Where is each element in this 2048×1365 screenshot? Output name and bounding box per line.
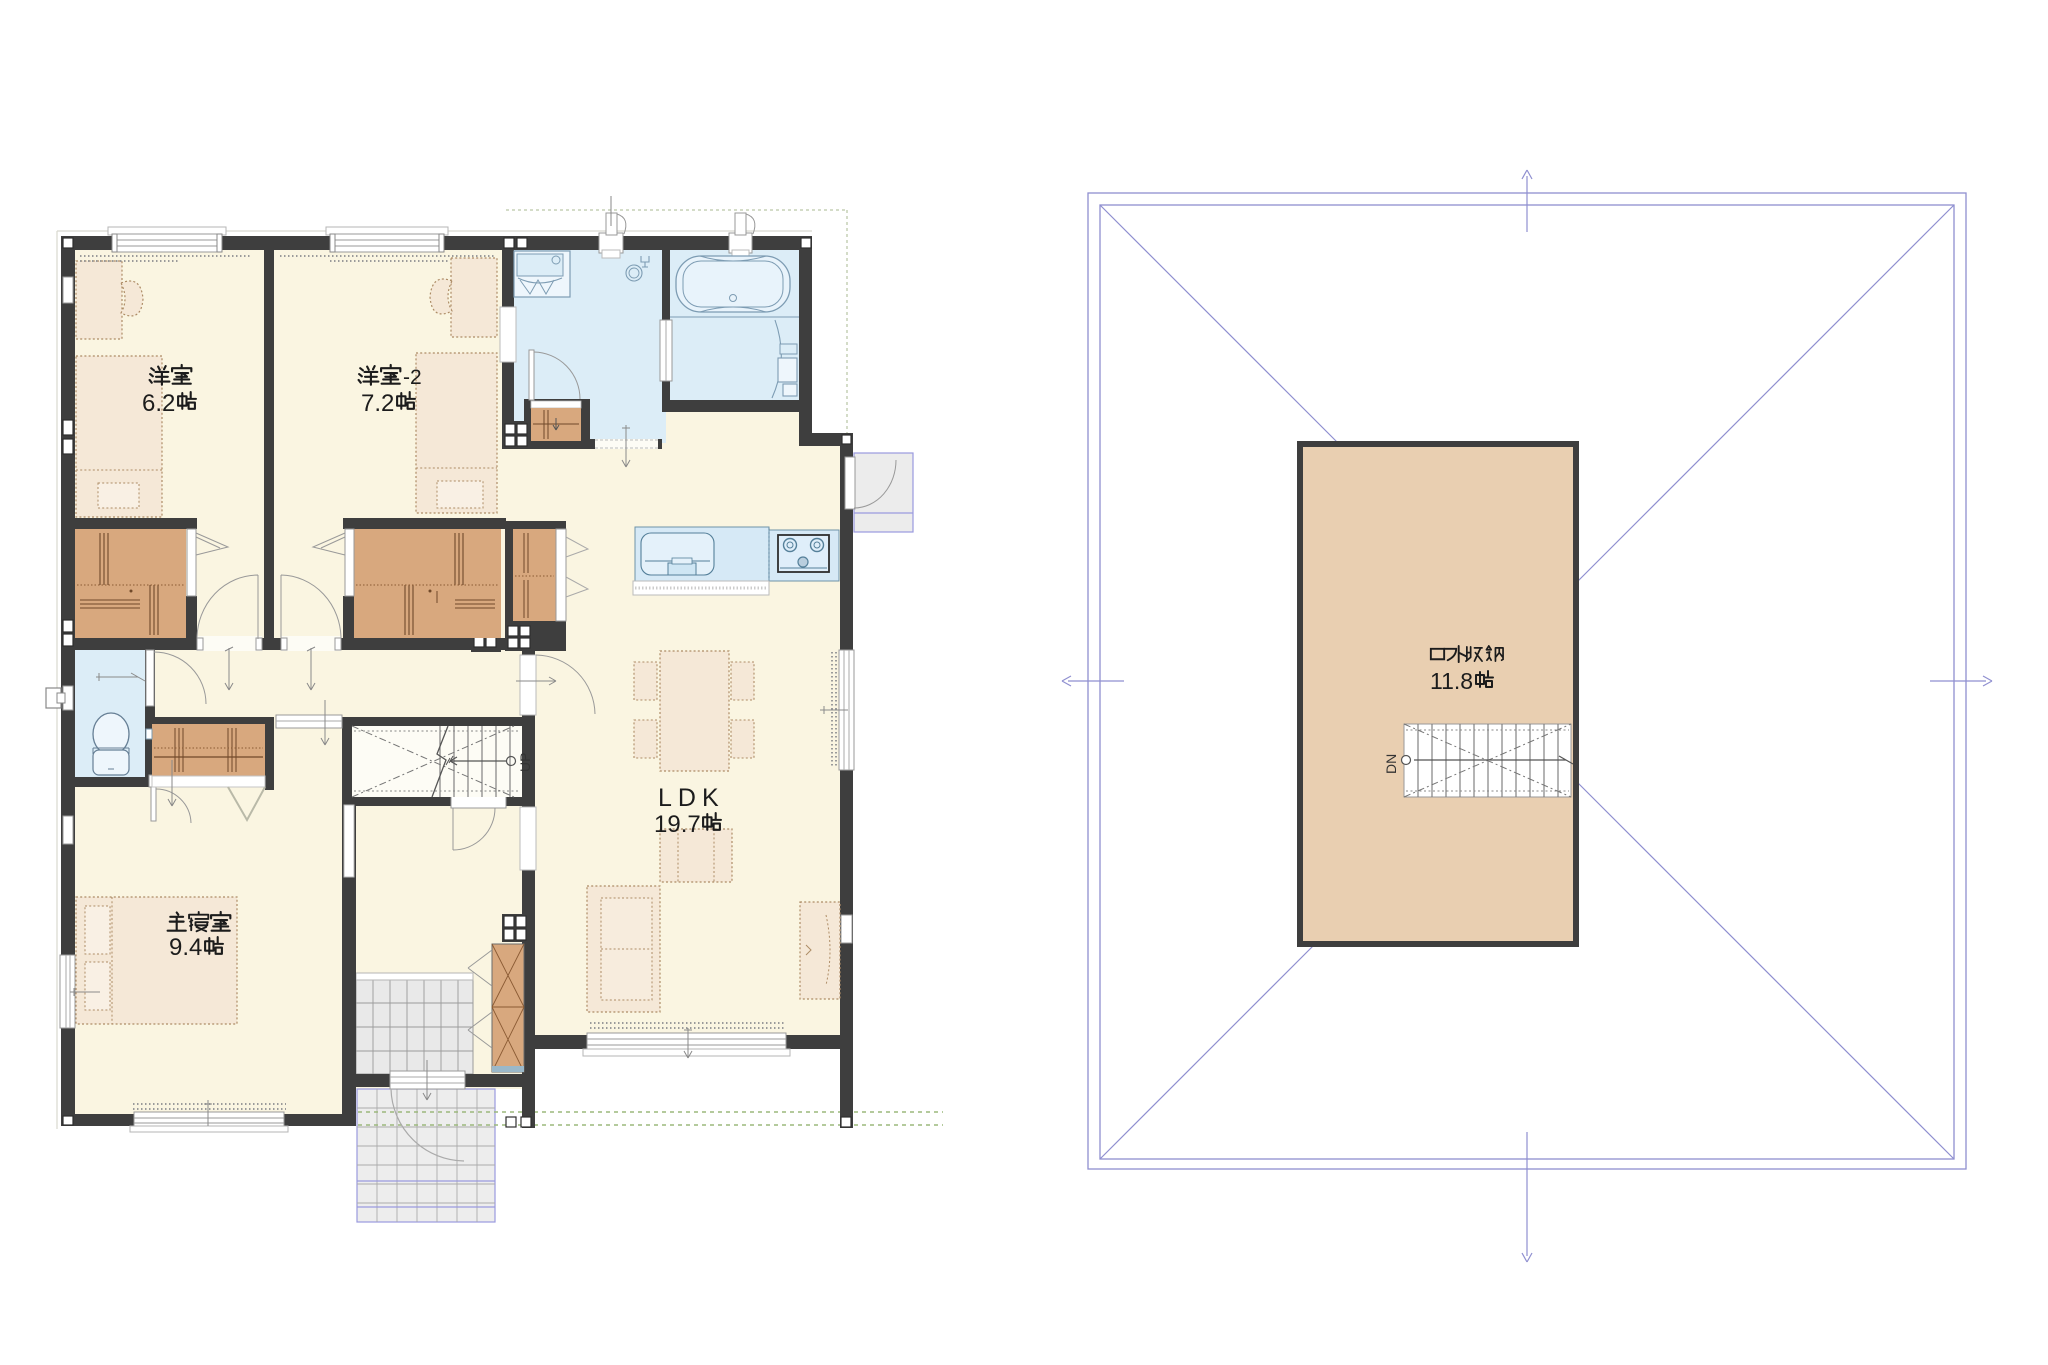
svg-text:-2: -2 <box>403 366 422 389</box>
svg-text:9.4: 9.4 <box>169 934 202 961</box>
svg-text:19.7: 19.7 <box>654 811 701 838</box>
svg-text:UP: UP <box>517 753 533 772</box>
svg-text:7.2: 7.2 <box>361 390 394 417</box>
svg-text:DN: DN <box>1383 754 1399 774</box>
svg-text:LDK: LDK <box>658 784 725 812</box>
svg-text:11.8: 11.8 <box>1430 668 1473 694</box>
svg-text:6.2: 6.2 <box>142 390 175 417</box>
